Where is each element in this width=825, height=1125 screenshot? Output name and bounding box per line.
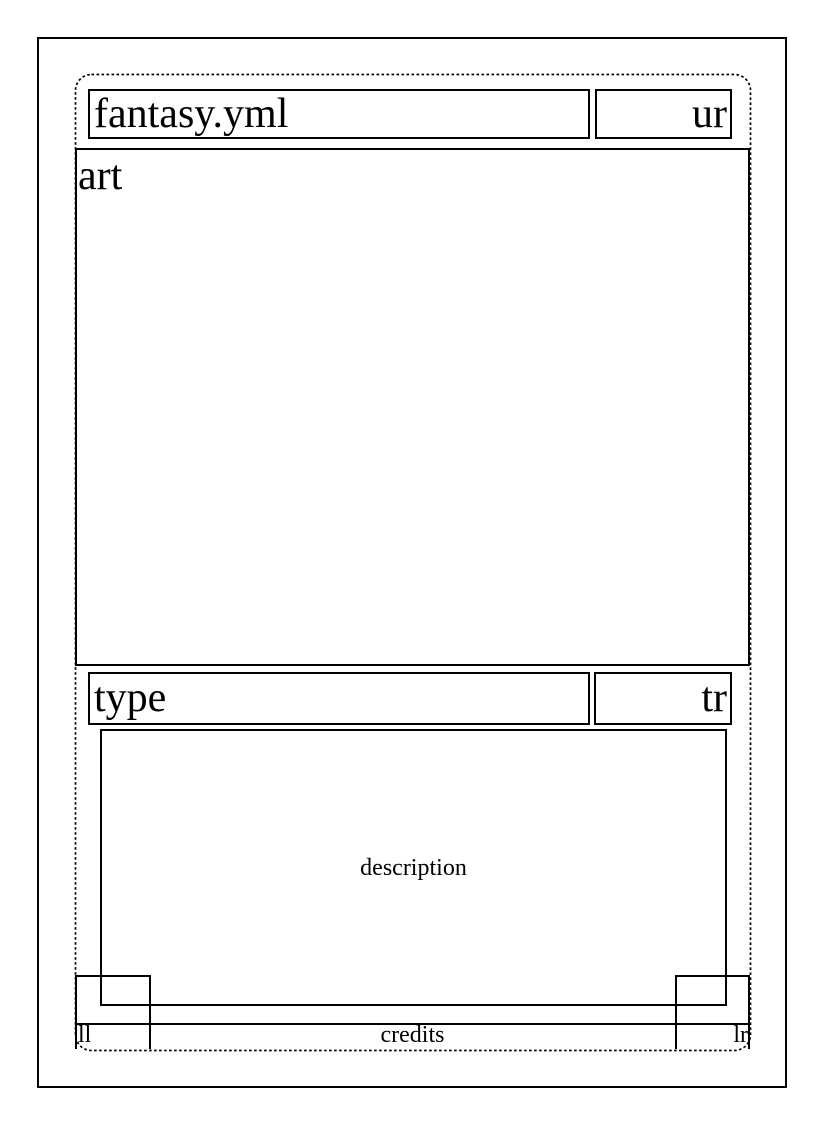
upper-right-box: ur	[595, 89, 732, 139]
type-label: type	[94, 674, 166, 722]
type-right-label: tr	[701, 674, 727, 722]
upper-right-label: ur	[692, 90, 727, 138]
credits-bar: ll credits lr	[75, 1023, 750, 1049]
lower-right-label: lr	[733, 1023, 748, 1047]
description-label: description	[360, 856, 467, 880]
title-box: fantasy.yml	[88, 89, 590, 139]
credits-label: credits	[75, 1023, 750, 1047]
type-box: type	[88, 672, 590, 725]
type-right-box: tr	[594, 672, 732, 725]
title-label: fantasy.yml	[94, 90, 288, 138]
art-label: art	[78, 153, 122, 199]
art-box: art	[75, 148, 750, 666]
description-box: description	[100, 729, 727, 1006]
card-template-preview: fantasy.yml ur art type tr description l…	[0, 0, 825, 1125]
